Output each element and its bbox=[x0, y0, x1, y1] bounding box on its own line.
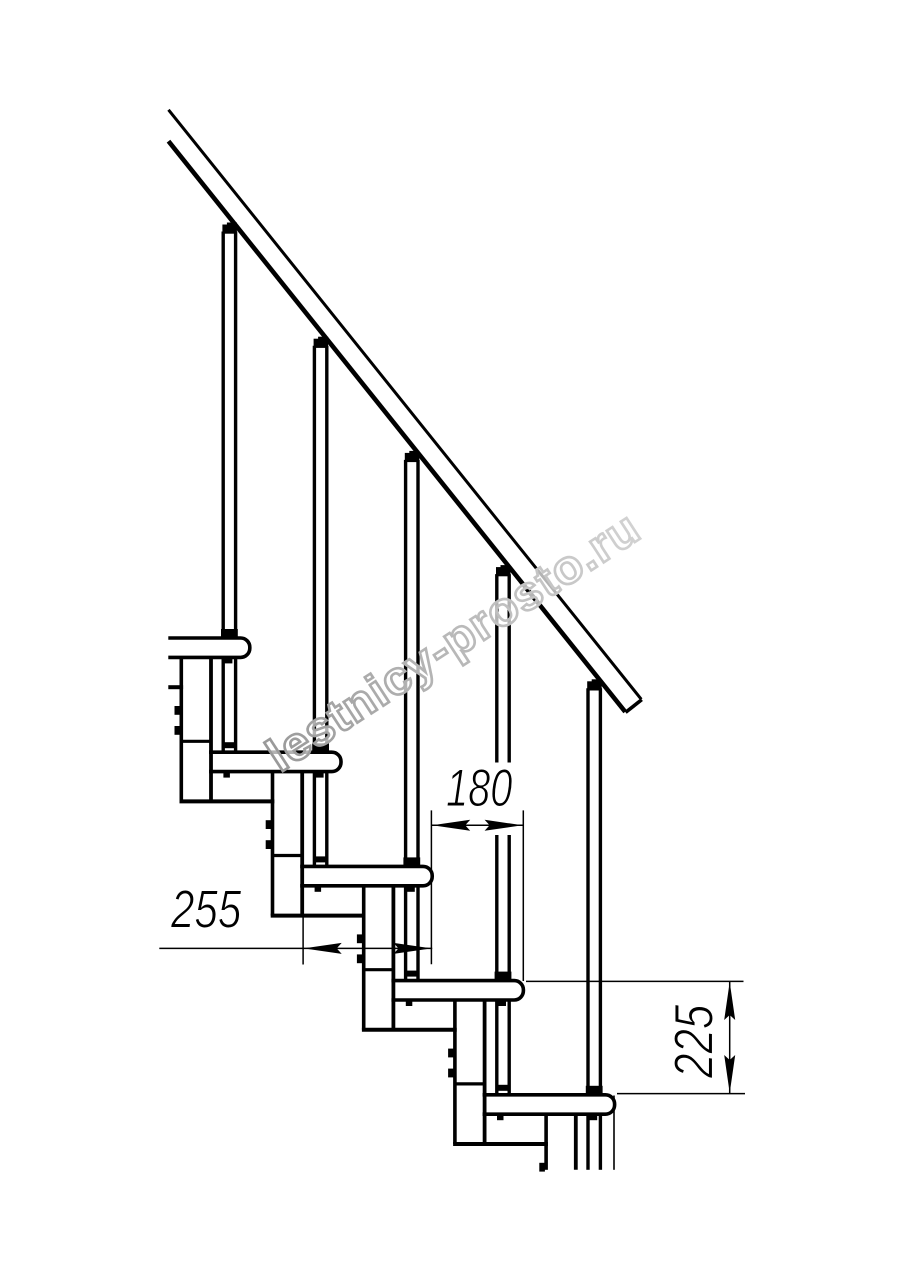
svg-text:225: 225 bbox=[663, 1004, 725, 1079]
svg-text:180: 180 bbox=[446, 758, 512, 817]
svg-text:255: 255 bbox=[170, 880, 242, 940]
